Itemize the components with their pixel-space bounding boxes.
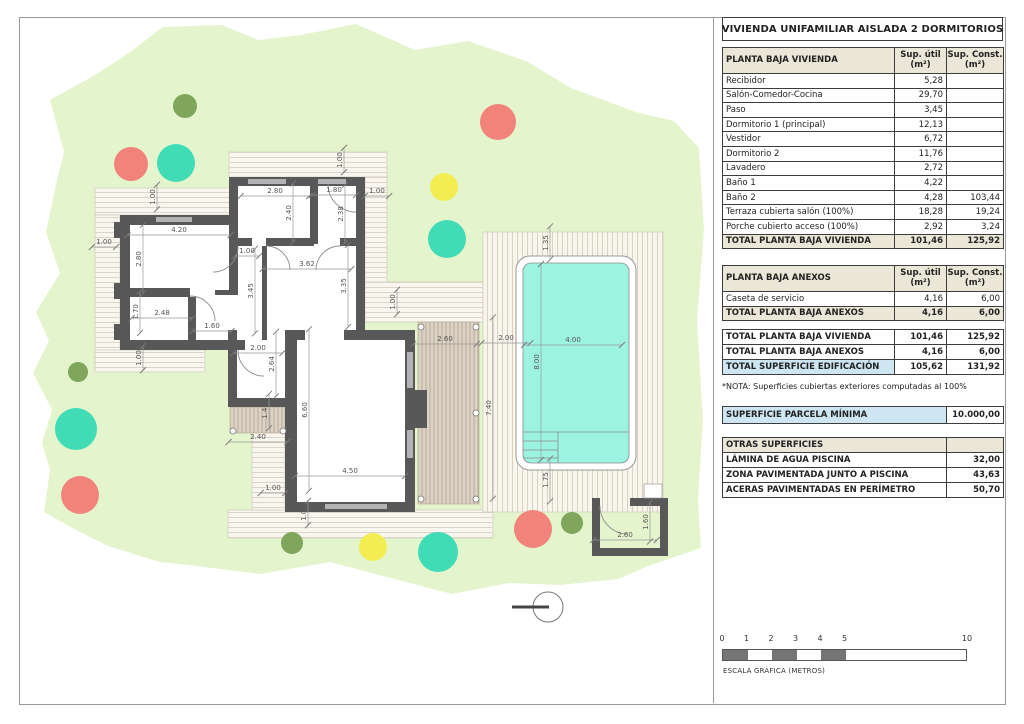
table-planta-baja-anexos: PLANTA BAJA ANEXOSSup. útil (m²)Sup. Con… xyxy=(722,265,1004,321)
dimension-label: 2.40 xyxy=(250,433,266,441)
table-row: TOTAL PLANTA BAJA VIVIENDA101,46125,92 xyxy=(723,330,1004,345)
dimension-label: 1.60 xyxy=(642,514,650,530)
tree xyxy=(428,220,466,258)
drawing-title: VIVIENDA UNIFAMILIAR AISLADA 2 DORMITORI… xyxy=(722,17,1003,41)
table-cell: Porche cubierto acceso (100%) xyxy=(723,220,895,235)
scale-tick-label: 0 xyxy=(719,634,724,643)
table-cell: Baño 1 xyxy=(723,176,895,191)
table-row: Baño 24,28103,44 xyxy=(723,191,1004,206)
table-row: Dormitorio 211,76 xyxy=(723,147,1004,162)
table-cell: 32,00 xyxy=(947,453,1004,468)
tree xyxy=(430,173,458,201)
table-cell xyxy=(947,118,1004,133)
dimension-label: 2.64 xyxy=(268,356,276,372)
table-cell: 6,00 xyxy=(947,345,1004,360)
table-cell: Sup. Const. (m²) xyxy=(947,266,1004,292)
scale-tick-label: 5 xyxy=(842,634,847,643)
table-planta-baja-vivienda: PLANTA BAJA VIVIENDASup. útil (m²)Sup. C… xyxy=(722,47,1004,249)
table-row: Porche cubierto acceso (100%)2,923,24 xyxy=(723,220,1004,235)
table-cell: OTRAS SUPERFICIES xyxy=(723,438,947,453)
dimension-label: 3.35 xyxy=(340,278,348,294)
table-cell: 5,28 xyxy=(895,74,947,89)
dimension-label: 1.00 xyxy=(149,189,157,205)
tree xyxy=(68,362,88,382)
scale-bar-segment xyxy=(821,650,846,660)
table-row: LÁMINA DE AGUA PISCINA32,00 xyxy=(723,453,1004,468)
tree xyxy=(359,533,387,561)
table-cell: 103,44 xyxy=(947,191,1004,206)
table-row: TOTAL PLANTA BAJA ANEXOS4,166,00 xyxy=(723,307,1004,322)
table-row: Baño 14,22 xyxy=(723,176,1004,191)
table-row: TOTAL SUPERFICIE EDIFICACIÓN105,62131,92 xyxy=(723,360,1004,375)
dimension-label: 2.00 xyxy=(498,334,514,342)
table-row: Caseta de servicio4,166,00 xyxy=(723,292,1004,307)
scale-bar: ESCALA GRÁFICA (METROS) 01234510 xyxy=(722,634,1003,680)
dimension-label: 2.60 xyxy=(617,531,633,539)
table-row: Lavadero2,72 xyxy=(723,162,1004,177)
dimension-label: 4.00 xyxy=(565,336,581,344)
table-cell: 4,22 xyxy=(895,176,947,191)
dimension-label: 4.20 xyxy=(171,226,187,234)
table-cell: TOTAL PLANTA BAJA ANEXOS xyxy=(723,307,895,322)
dimension-label: 1.00 xyxy=(135,350,143,366)
table-cell: 6,00 xyxy=(947,307,1004,322)
dimension-label: 2.38 xyxy=(337,206,345,222)
table-row: Dormitorio 1 (principal)12,13 xyxy=(723,118,1004,133)
table-resumen-totales: TOTAL PLANTA BAJA VIVIENDA101,46125,92TO… xyxy=(722,329,1004,375)
dimension-label: 1.75 xyxy=(542,472,550,488)
table-cell: 4,16 xyxy=(895,307,947,322)
tree xyxy=(418,532,458,572)
table-cell: Recibidor xyxy=(723,74,895,89)
table-cell: 29,70 xyxy=(895,89,947,104)
table-cell xyxy=(947,74,1004,89)
table-cell: 18,28 xyxy=(895,205,947,220)
tree xyxy=(114,147,148,181)
scale-tick-label: 3 xyxy=(793,634,798,643)
caseta-step xyxy=(644,484,662,498)
table-cell: Vestidor xyxy=(723,132,895,147)
tree xyxy=(480,104,516,140)
table-superficie-parcela: SUPERFICIE PARCELA MÍNIMA10.000,00 xyxy=(722,406,1004,424)
table-cell: 3,24 xyxy=(947,220,1004,235)
table-cell: Salón-Comedor-Cocina xyxy=(723,89,895,104)
tree xyxy=(173,94,197,118)
table-row: Vestidor6,72 xyxy=(723,132,1004,147)
dimension-label: 1.00 xyxy=(336,152,344,168)
table-cell: Sup. útil (m²) xyxy=(895,266,947,292)
table-cell: 101,46 xyxy=(895,235,947,250)
table-row: ZONA PAVIMENTADA JUNTO A PISCINA43,63 xyxy=(723,468,1004,483)
table-cell: 19,24 xyxy=(947,205,1004,220)
table-cell: TOTAL PLANTA BAJA ANEXOS xyxy=(723,345,895,360)
dimension-label: 1.00 xyxy=(96,238,112,246)
table-cell xyxy=(947,162,1004,177)
dimension-label: 2.60 xyxy=(437,335,453,343)
table-cell: 2,72 xyxy=(895,162,947,177)
dimension-label: 3.62 xyxy=(299,260,315,268)
dimension-label: 2.48 xyxy=(154,309,170,317)
table-header-row: PLANTA BAJA VIVIENDASup. útil (m²)Sup. C… xyxy=(723,48,1004,74)
table-cell: PLANTA BAJA ANEXOS xyxy=(723,266,895,292)
tree xyxy=(281,532,303,554)
table-cell: 125,92 xyxy=(947,330,1004,345)
table-cell: Sup. Const. (m²) xyxy=(947,48,1004,74)
table-cell: Terraza cubierta salón (100%) xyxy=(723,205,895,220)
table-cell xyxy=(947,438,1004,453)
scale-tick-label: 10 xyxy=(962,634,972,643)
dimension-label: 1.80 xyxy=(326,186,342,194)
table-cell: 6,00 xyxy=(947,292,1004,307)
table-cell: TOTAL PLANTA BAJA VIVIENDA xyxy=(723,330,895,345)
dimension-label: 2.80 xyxy=(267,187,283,195)
table-cell: 4,28 xyxy=(895,191,947,206)
table-cell: SUPERFICIE PARCELA MÍNIMA xyxy=(723,407,947,424)
table-row: Salón-Comedor-Cocina29,70 xyxy=(723,89,1004,104)
tree xyxy=(561,512,583,534)
table-cell: 4,16 xyxy=(895,292,947,307)
table-row: SUPERFICIE PARCELA MÍNIMA10.000,00 xyxy=(723,407,1004,424)
dimension-label: 1.00 xyxy=(300,505,308,521)
table-row: Paso3,45 xyxy=(723,103,1004,118)
tree xyxy=(61,476,99,514)
table-cell xyxy=(947,132,1004,147)
dimension-label: 1.70 xyxy=(132,304,140,320)
drawing-sheet: 1.002.801.801.002.402.381.004.201.002.80… xyxy=(0,0,1024,724)
dimension-label: 1.00 xyxy=(389,294,397,310)
scale-bar-caption: ESCALA GRÁFICA (METROS) xyxy=(723,667,825,675)
table-cell xyxy=(947,89,1004,104)
scale-tick-label: 1 xyxy=(744,634,749,643)
dimension-label: 7.40 xyxy=(485,400,493,416)
table-row: Recibidor5,28 xyxy=(723,74,1004,89)
table-cell: 3,45 xyxy=(895,103,947,118)
dimension-label: 1.00 xyxy=(369,187,385,195)
scale-tick-label: 4 xyxy=(817,634,822,643)
scale-tick-label: 2 xyxy=(768,634,773,643)
table-cell xyxy=(947,176,1004,191)
table-cell: TOTAL PLANTA BAJA VIVIENDA xyxy=(723,235,895,250)
table-row: TOTAL PLANTA BAJA VIVIENDA101,46125,92 xyxy=(723,235,1004,250)
dimension-label: 2.00 xyxy=(250,344,266,352)
table-cell: 43,63 xyxy=(947,468,1004,483)
nota-text: *NOTA: Superficies cubiertas exteriores … xyxy=(722,382,1003,391)
dimension-label: 8.00 xyxy=(533,354,541,370)
table-row: ACERAS PAVIMENTADAS EN PERÍMETRO50,70 xyxy=(723,483,1004,498)
table-cell: 2,92 xyxy=(895,220,947,235)
table-cell: Sup. útil (m²) xyxy=(895,48,947,74)
tree xyxy=(157,144,195,182)
scale-bar-segment xyxy=(723,650,748,660)
table-cell: Lavadero xyxy=(723,162,895,177)
dimension-label: 3.45 xyxy=(247,283,255,299)
dimension-label: 4.50 xyxy=(342,467,358,475)
dimension-label: 1.35 xyxy=(542,235,550,251)
table-cell: 105,62 xyxy=(895,360,947,375)
dimension-label: 1.00 xyxy=(265,484,281,492)
table-cell: Paso xyxy=(723,103,895,118)
table-row: TOTAL PLANTA BAJA ANEXOS4,166,00 xyxy=(723,345,1004,360)
table-cell: ZONA PAVIMENTADA JUNTO A PISCINA xyxy=(723,468,947,483)
table-cell xyxy=(947,147,1004,162)
table-cell: ACERAS PAVIMENTADAS EN PERÍMETRO xyxy=(723,483,947,498)
dimension-label: 1.40 xyxy=(261,403,269,419)
table-cell: 11,76 xyxy=(895,147,947,162)
tree xyxy=(514,510,552,548)
table-row: Terraza cubierta salón (100%)18,2819,24 xyxy=(723,205,1004,220)
table-cell: 50,70 xyxy=(947,483,1004,498)
tree xyxy=(55,408,97,450)
table-cell: TOTAL SUPERFICIE EDIFICACIÓN xyxy=(723,360,895,375)
table-cell: 6,72 xyxy=(895,132,947,147)
table-cell: 12,13 xyxy=(895,118,947,133)
scale-bar-strip xyxy=(722,649,967,661)
table-row: OTRAS SUPERFICIES xyxy=(723,438,1004,453)
table-otras-superficies: OTRAS SUPERFICIESLÁMINA DE AGUA PISCINA3… xyxy=(722,437,1004,498)
dimension-label: 2.40 xyxy=(285,205,293,221)
dimension-label: 6.60 xyxy=(301,402,309,418)
dimension-label: 2.80 xyxy=(135,251,143,267)
table-cell: Dormitorio 2 xyxy=(723,147,895,162)
table-cell: 10.000,00 xyxy=(947,407,1004,424)
table-cell: PLANTA BAJA VIVIENDA xyxy=(723,48,895,74)
scale-bar-segment xyxy=(772,650,797,660)
table-cell: Baño 2 xyxy=(723,191,895,206)
dimension-label: 1.60 xyxy=(204,322,220,330)
table-cell: LÁMINA DE AGUA PISCINA xyxy=(723,453,947,468)
table-header-row: PLANTA BAJA ANEXOSSup. útil (m²)Sup. Con… xyxy=(723,266,1004,292)
table-cell: Caseta de servicio xyxy=(723,292,895,307)
table-cell: Dormitorio 1 (principal) xyxy=(723,118,895,133)
table-cell xyxy=(947,103,1004,118)
table-cell: 4,16 xyxy=(895,345,947,360)
table-cell: 125,92 xyxy=(947,235,1004,250)
table-cell: 131,92 xyxy=(947,360,1004,375)
table-cell: 101,46 xyxy=(895,330,947,345)
north-symbol xyxy=(512,592,563,622)
